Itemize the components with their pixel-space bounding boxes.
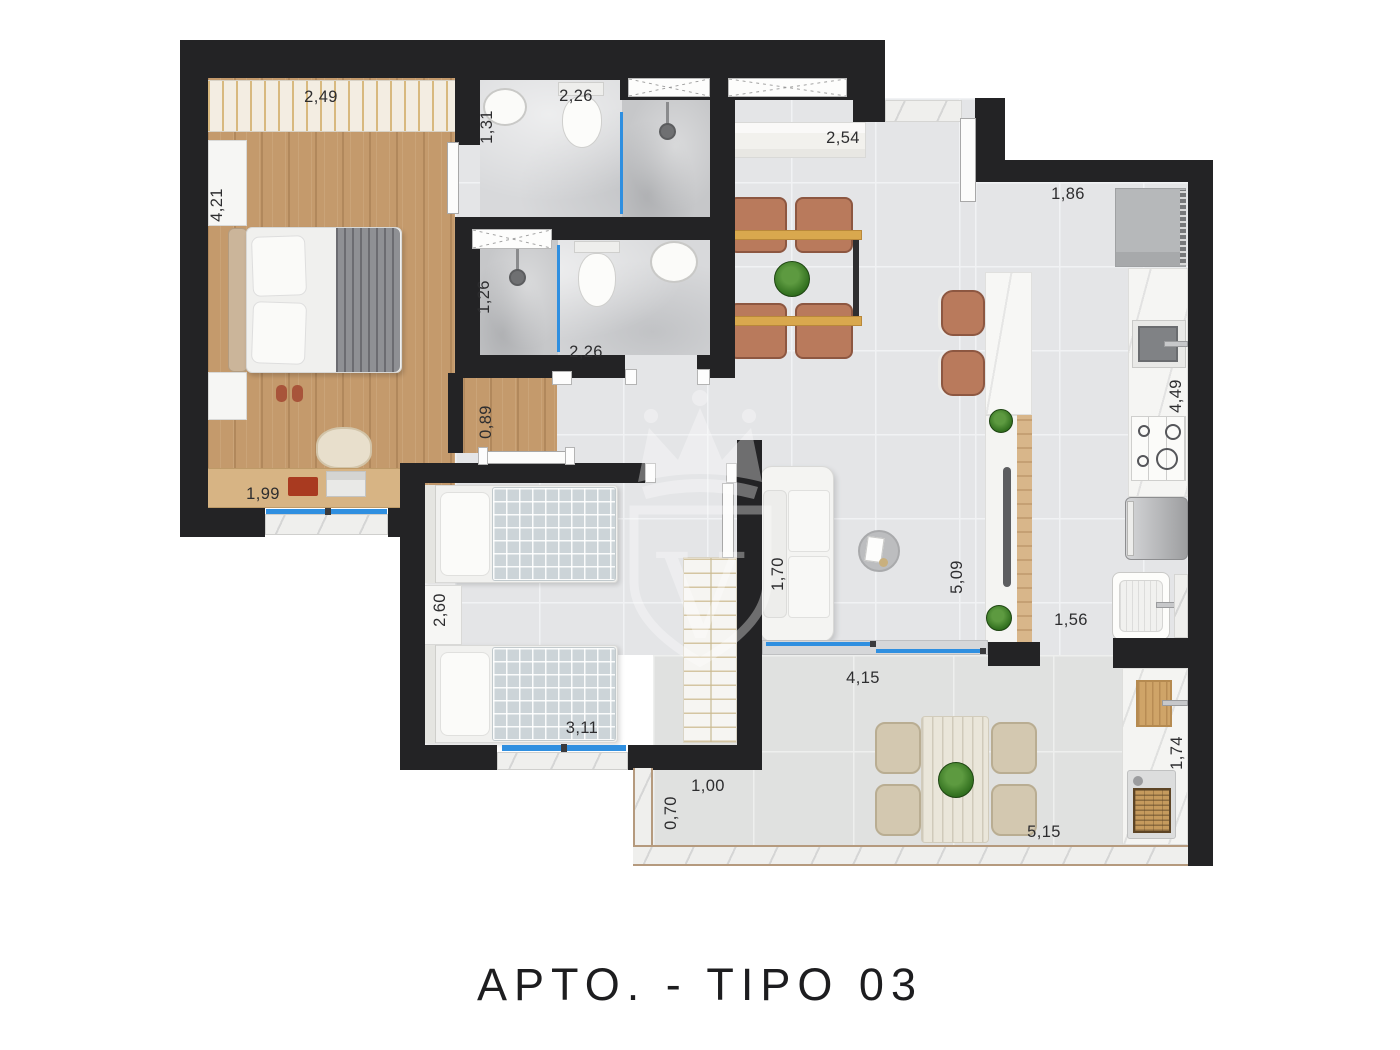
- office-chair: [316, 427, 372, 469]
- door-jamb: [625, 369, 637, 385]
- toilet-tank: [574, 241, 620, 253]
- wall-segment: [710, 78, 735, 378]
- dim-bedroom1-depth: 4,21: [209, 188, 226, 222]
- window-glass: [266, 509, 326, 514]
- dim-bath1-width: 1,31: [479, 110, 496, 144]
- window-handle: [561, 744, 567, 752]
- sofa-cushion: [788, 556, 830, 618]
- floor-plan-title: APTO. - TIPO 03: [477, 959, 923, 1011]
- burner: [1165, 424, 1181, 440]
- burner: [1138, 425, 1150, 437]
- floor-plan: 2,49 4,21 1,31 2,26 1,26 2,26 2,54 1,86 …: [0, 0, 1400, 1050]
- grill-knob: [1133, 776, 1143, 786]
- burner: [1137, 455, 1149, 467]
- shower-drain: [659, 123, 676, 140]
- burner: [1156, 448, 1178, 470]
- wall-segment: [448, 373, 463, 453]
- washbasin: [650, 241, 698, 283]
- door-jamb: [565, 447, 575, 465]
- wall-segment: [180, 40, 208, 537]
- door-jamb: [552, 371, 572, 385]
- shower-glass: [557, 245, 560, 352]
- refrigerator-vent: [1180, 190, 1186, 265]
- refrigerator: [1115, 188, 1186, 267]
- bathroom-door-panel: [472, 229, 552, 249]
- dim-bath1-length: 2,26: [559, 88, 593, 105]
- bedroom1-door: [482, 451, 573, 464]
- dining-chair: [729, 303, 787, 359]
- faucet: [1164, 341, 1188, 347]
- door-jamb: [726, 463, 737, 483]
- door-jamb: [697, 369, 710, 385]
- dim-sideboard: 2,54: [826, 130, 860, 147]
- dim-terrace-living: 4,15: [846, 670, 880, 687]
- window-glass: [330, 509, 387, 514]
- dim-bedroom1-wardrobe: 2,49: [304, 89, 338, 106]
- wall-segment: [1113, 638, 1188, 668]
- door-jamb: [645, 463, 656, 483]
- dining-table-frame: [853, 234, 859, 322]
- window-sill: [497, 752, 628, 770]
- pillow: [440, 652, 490, 736]
- dining-table-edge: [722, 230, 862, 240]
- pillow: [251, 301, 307, 365]
- oven-handle: [1127, 501, 1134, 556]
- shower-glass: [620, 112, 623, 214]
- pillow: [251, 235, 307, 297]
- dim-grill-counter: 1,74: [1169, 736, 1186, 770]
- dim-terrace-left-width: 1,00: [691, 778, 725, 795]
- slipper: [276, 385, 287, 402]
- island-counter: [985, 272, 1032, 415]
- dim-living-length: 5,09: [949, 560, 966, 594]
- bed-duvet: [492, 487, 616, 581]
- table-decor: [879, 558, 888, 567]
- dining-chair: [795, 303, 853, 359]
- wall-segment: [400, 463, 425, 770]
- wall-segment: [400, 463, 646, 483]
- sliding-door-glass: [876, 649, 986, 653]
- laptop: [326, 471, 366, 497]
- high-window: [728, 78, 847, 97]
- slipper: [292, 385, 303, 402]
- plant: [986, 605, 1012, 631]
- sliding-door-handle: [870, 641, 876, 647]
- plant: [989, 409, 1013, 433]
- dim-hall-width: 0,89: [478, 405, 495, 439]
- grill-grate: [1133, 788, 1171, 833]
- dining-chair: [729, 197, 787, 253]
- wall-segment: [455, 80, 480, 145]
- outdoor-chair: [991, 722, 1037, 774]
- plant: [938, 762, 974, 798]
- wall-segment: [853, 40, 885, 122]
- wall-segment: [628, 745, 760, 770]
- outdoor-chair: [875, 722, 921, 774]
- dim-terrace-bottom: 5,15: [1027, 824, 1061, 841]
- outdoor-chair: [875, 784, 921, 836]
- entry-door: [960, 118, 976, 202]
- door-jamb: [478, 447, 488, 465]
- oven: [1125, 497, 1188, 560]
- entry-threshold: [885, 100, 962, 122]
- plant: [774, 261, 810, 297]
- tv-rack-wood-panel: [1017, 415, 1032, 645]
- sofa-cushion: [788, 490, 830, 552]
- bar-stool: [941, 350, 985, 396]
- dim-kitchen-counter: 4,49: [1168, 379, 1185, 413]
- dim-sofa-depth: 1,70: [770, 557, 787, 591]
- window-glass: [566, 745, 626, 751]
- mousepad: [288, 477, 318, 496]
- sliding-door-handle: [980, 648, 986, 654]
- sofa-back: [763, 490, 787, 618]
- wall-segment: [1005, 160, 1213, 182]
- wall-segment: [1188, 160, 1213, 866]
- dining-table-edge: [722, 316, 862, 326]
- bathroom1-door: [447, 142, 459, 214]
- dim-bedroom2-width: 3,11: [566, 720, 599, 737]
- wall-segment: [455, 40, 620, 80]
- pillow: [440, 492, 490, 576]
- built-in-wardrobe: [683, 557, 737, 743]
- terrace-parapet: [633, 768, 653, 845]
- wall-segment: [988, 642, 1040, 666]
- bedroom2-door: [722, 483, 734, 558]
- dim-bath2-width: 1,26: [476, 280, 493, 314]
- dim-bedroom2-nightstand: 2,60: [432, 593, 449, 627]
- high-window: [628, 78, 710, 97]
- wall-segment: [975, 98, 1005, 182]
- soundbar: [1003, 467, 1011, 587]
- window-glass: [502, 745, 562, 751]
- wall-segment: [180, 508, 265, 537]
- dim-desk: 1,99: [246, 486, 280, 503]
- double-bed-headboard: [228, 228, 248, 372]
- dim-bath2-length: 2,26: [569, 344, 603, 361]
- toilet: [578, 253, 616, 307]
- wall-segment: [737, 440, 762, 770]
- dim-service-width: 1,56: [1054, 612, 1088, 629]
- faucet: [1162, 700, 1188, 706]
- dining-chair: [795, 197, 853, 253]
- window-handle: [325, 508, 331, 515]
- window-sill: [265, 514, 388, 535]
- bed-throw-blanket: [336, 228, 400, 372]
- dim-terrace-left-depth: 0,70: [663, 796, 680, 830]
- wall-segment: [180, 40, 458, 78]
- wall-segment: [400, 745, 497, 770]
- nightstand: [208, 372, 247, 420]
- shower-drain: [509, 269, 526, 286]
- sliding-door-glass: [766, 642, 876, 646]
- terrace-parapet: [633, 845, 1188, 866]
- service-shelf: [1174, 574, 1188, 638]
- dim-kitchen-width: 1,86: [1051, 186, 1085, 203]
- bar-stool: [941, 290, 985, 336]
